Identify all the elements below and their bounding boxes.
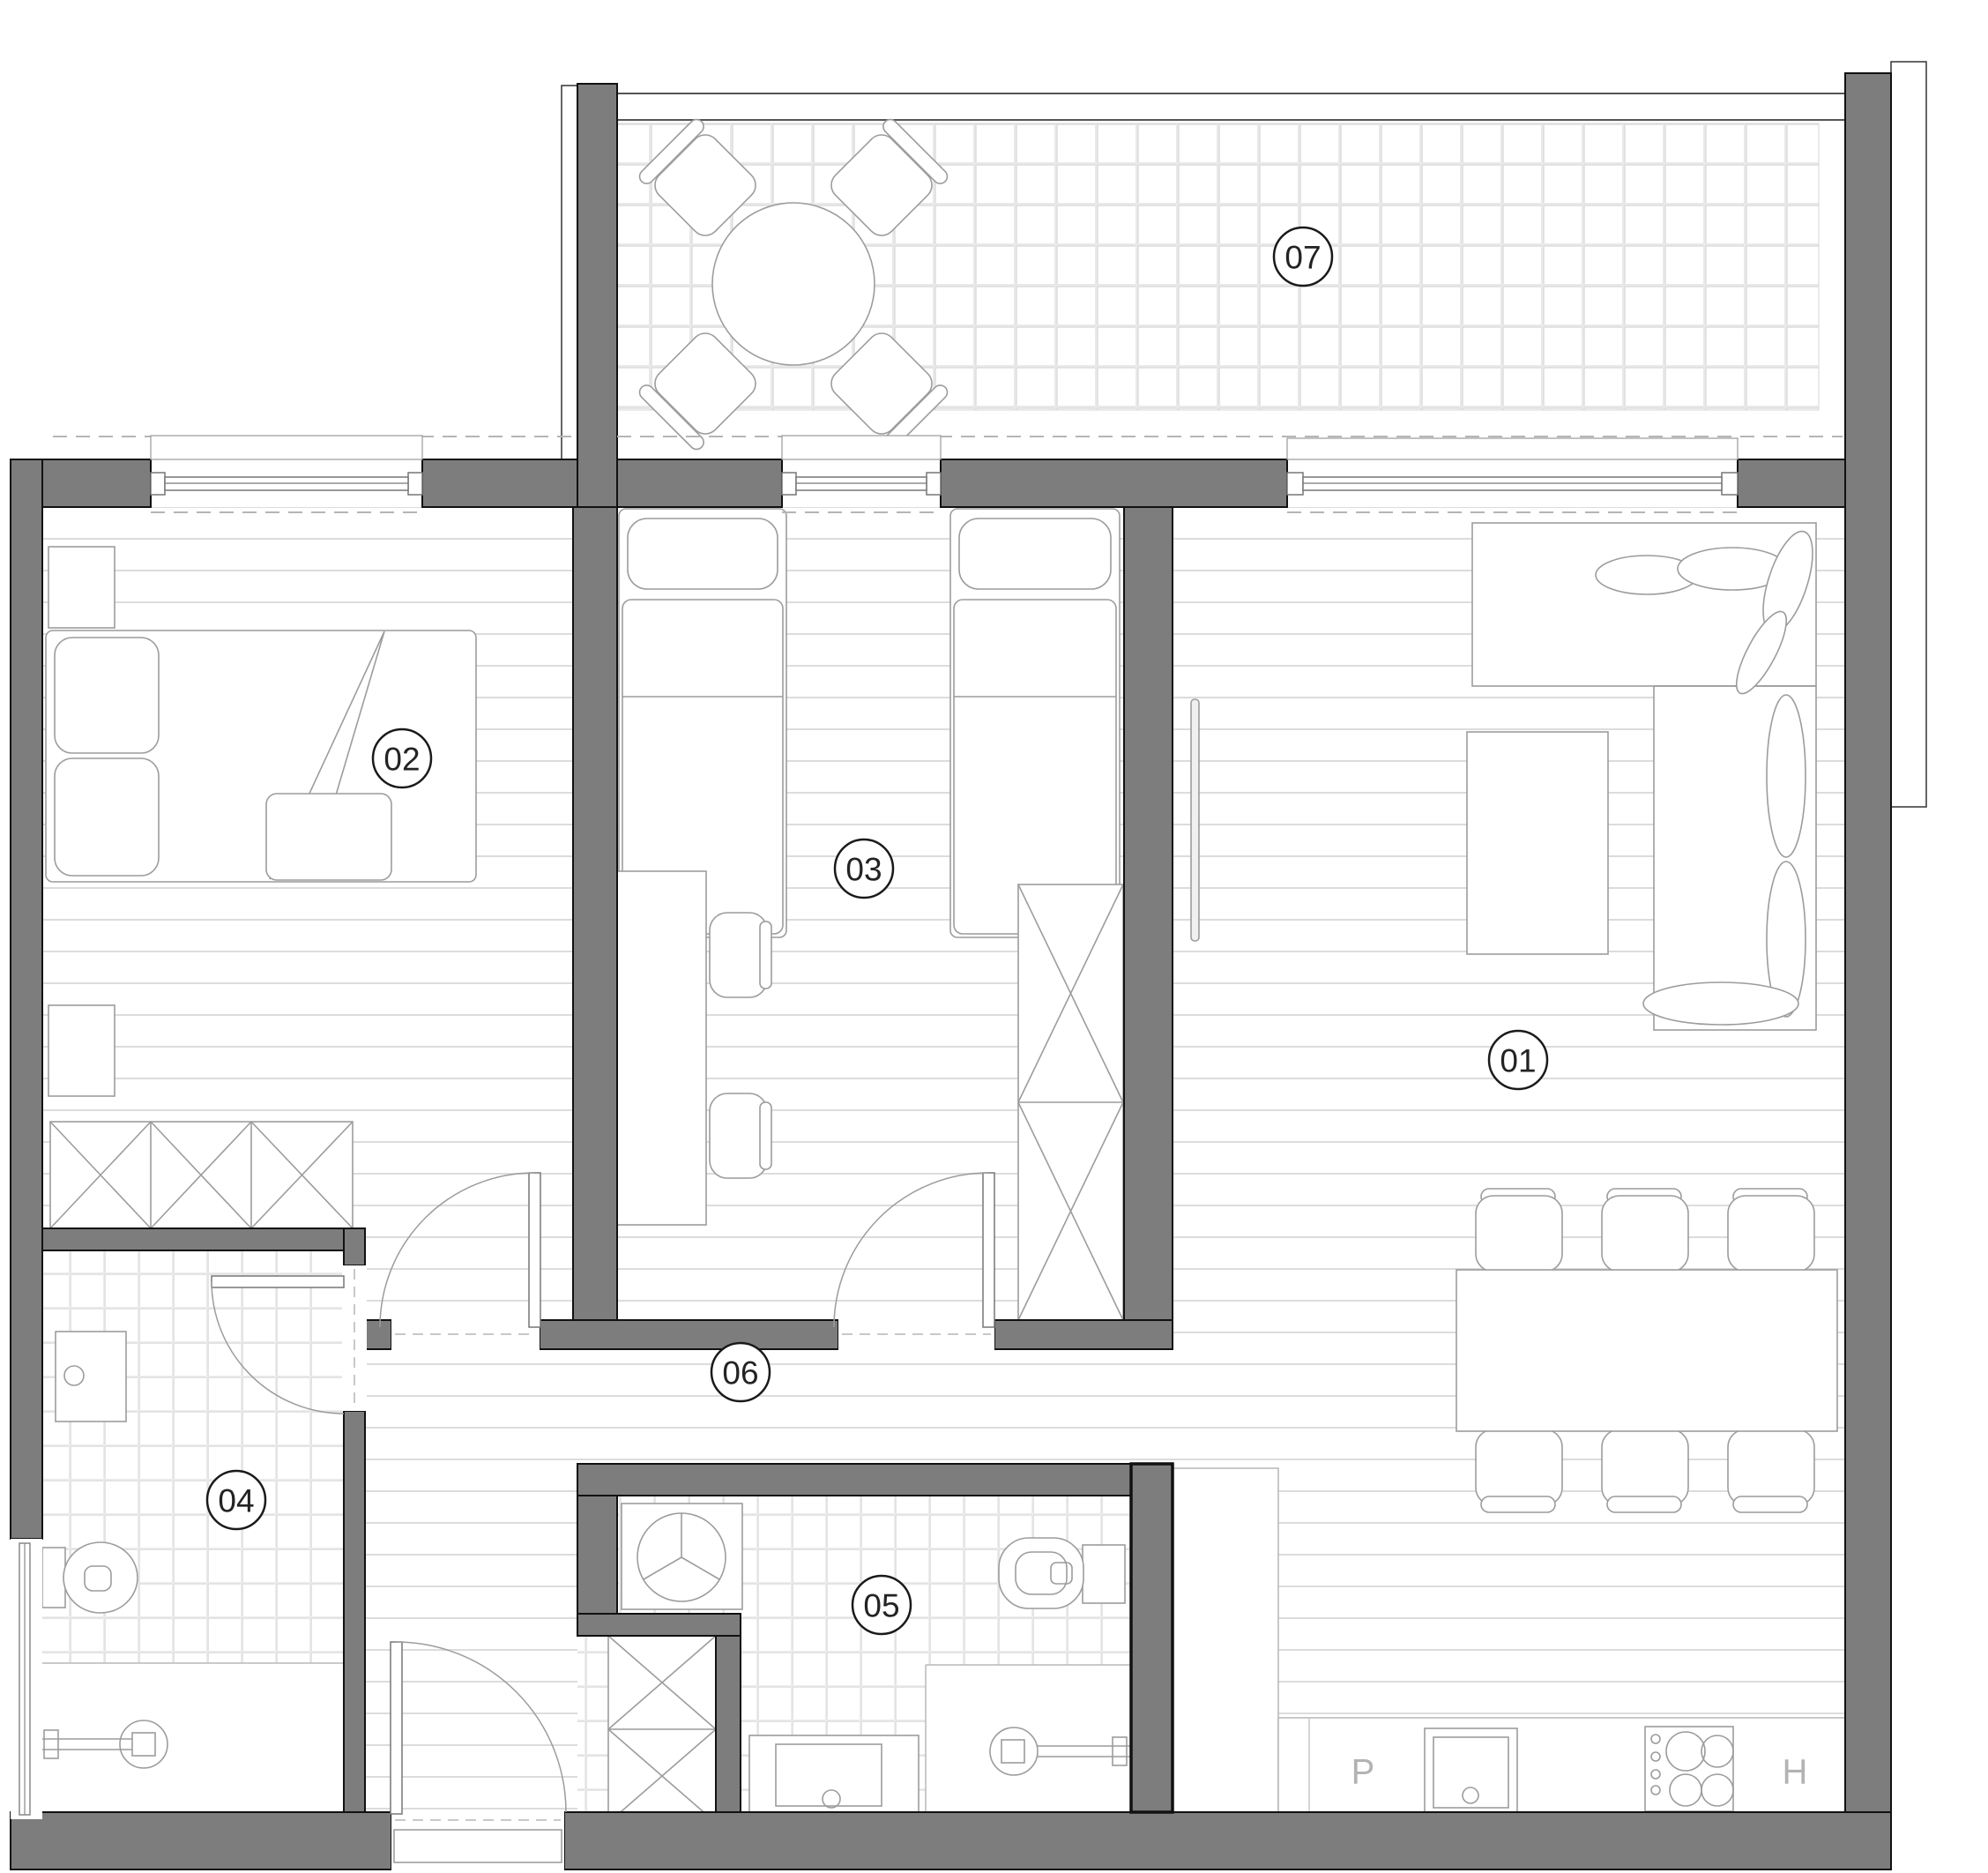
wall-top-seg1	[42, 459, 151, 507]
desk	[617, 871, 706, 1225]
wall-room03-living	[1124, 507, 1173, 1320]
coffee-table	[1467, 732, 1608, 954]
dining-chairs-bottom	[1476, 1429, 1814, 1512]
room-label-06-text: 06	[722, 1354, 758, 1391]
terrace-railing	[617, 93, 1845, 120]
wall-bath04-right-lower	[344, 1411, 365, 1812]
wall-bottom-right	[564, 1812, 1891, 1869]
wall-bath05-niche-left	[577, 1496, 617, 1614]
room-label-05: 05	[853, 1576, 911, 1634]
window-bathroom04	[11, 1539, 42, 1819]
wall-hall-north-c	[994, 1320, 1173, 1349]
room-label-05-text: 05	[863, 1587, 899, 1623]
desk-chair	[710, 1093, 771, 1178]
floor-plan-drawing: 01 02 03 04 05 06 07 P H	[0, 0, 1988, 1873]
wall-left-upper	[11, 459, 42, 1539]
kitchen-letter-p: P	[1351, 1752, 1375, 1791]
wall-top-seg2	[422, 459, 577, 507]
wall-bath05-living	[1131, 1464, 1173, 1812]
window-bedroom02	[151, 436, 422, 495]
terrace-sliding-door	[1287, 438, 1738, 495]
window-bedroom03	[782, 436, 941, 495]
wall-top-seg3	[617, 459, 782, 507]
wall-bath05-niche-bottom	[577, 1614, 741, 1636]
room-label-02: 02	[373, 729, 431, 787]
toilet	[999, 1538, 1125, 1608]
wall-room02-room03	[573, 507, 617, 1320]
wardrobe	[50, 1122, 353, 1228]
vanity-sink	[749, 1735, 919, 1812]
room-label-01: 01	[1489, 1031, 1547, 1089]
right-facade-band	[1891, 62, 1926, 807]
kitchen-tall-cabinet	[1173, 1468, 1278, 1812]
room-label-01-text: 01	[1500, 1042, 1536, 1078]
dining-table	[1456, 1270, 1837, 1431]
room-label-04-text: 04	[218, 1482, 254, 1519]
terrace-left-facade-band	[562, 86, 577, 459]
room-label-04: 04	[207, 1471, 265, 1529]
floor-plan-canvas: 01 02 03 04 05 06 07 P H	[0, 0, 1988, 1873]
washing-machine	[622, 1504, 742, 1609]
wall-hall-north-b	[540, 1320, 838, 1349]
wall-bath04-right-upper	[344, 1228, 365, 1265]
wall-bath04-top	[42, 1228, 365, 1250]
wall-top-seg4	[941, 459, 1287, 507]
wall-right	[1845, 73, 1891, 1869]
hall-closet	[608, 1636, 716, 1823]
wall-bath05-top	[577, 1464, 1131, 1496]
sliding-panel	[1191, 699, 1199, 941]
desk-chair	[710, 913, 771, 997]
room-label-07: 07	[1274, 228, 1332, 286]
wardrobe	[1018, 884, 1123, 1320]
wall-terrace-left	[577, 84, 617, 507]
room-label-06: 06	[711, 1343, 770, 1401]
toilet	[42, 1542, 138, 1613]
dining-chairs-top	[1476, 1189, 1814, 1272]
kitchen-sink	[1425, 1728, 1517, 1817]
stove-hob	[1645, 1727, 1733, 1811]
kitchen-letter-h: H	[1783, 1752, 1808, 1791]
wall-bath05-left-lower	[716, 1636, 741, 1812]
room-label-03-text: 03	[845, 851, 882, 887]
room-label-02-text: 02	[383, 741, 420, 777]
single-bed	[950, 509, 1120, 937]
wall-hall-north-a	[365, 1320, 391, 1349]
room-label-03: 03	[835, 839, 893, 898]
washbasin	[56, 1332, 126, 1422]
wall-top-seg5	[1738, 459, 1845, 507]
nightstand	[48, 547, 115, 628]
nightstand	[48, 1005, 115, 1096]
terrace-round-table	[712, 203, 875, 365]
room-label-07-text: 07	[1284, 239, 1321, 275]
wall-bottom-left	[11, 1812, 391, 1869]
